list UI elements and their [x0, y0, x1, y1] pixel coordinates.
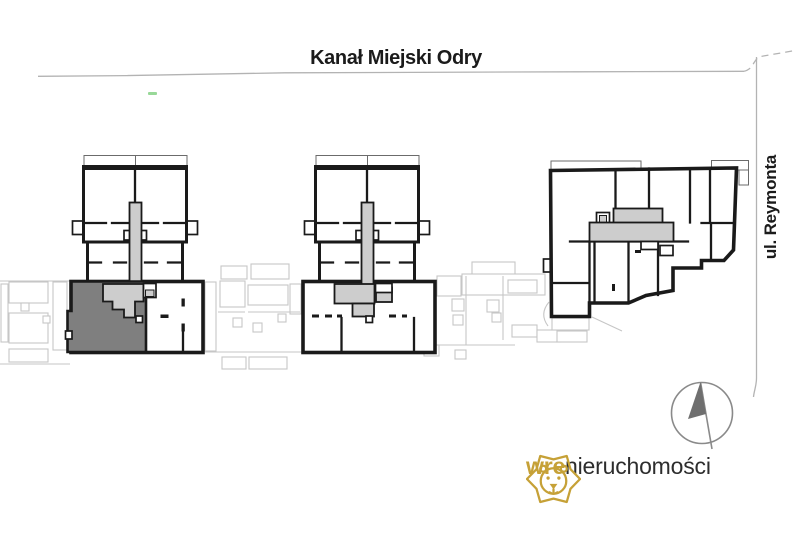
- building-plan-3: [544, 161, 749, 317]
- building-plan-1: [66, 156, 204, 353]
- site-plan-page: Kanał Miejski Odry ul. Reymonta wrenieru…: [0, 0, 796, 537]
- north-arrow-compass-icon: [672, 382, 733, 449]
- street-label: ul. Reymonta: [761, 155, 781, 259]
- logo[interactable]: wrenieruchomości: [526, 448, 711, 480]
- lion-logo-icon: [526, 448, 581, 510]
- street-line: [754, 57, 757, 397]
- canal-label: Kanał Miejski Odry: [310, 47, 482, 70]
- logo-suffix: nieruchomości: [565, 453, 711, 479]
- building-plan-2: [303, 156, 435, 353]
- stairwell-core: [335, 284, 375, 304]
- green-mark: [148, 92, 157, 95]
- stairwell-core: [614, 209, 663, 224]
